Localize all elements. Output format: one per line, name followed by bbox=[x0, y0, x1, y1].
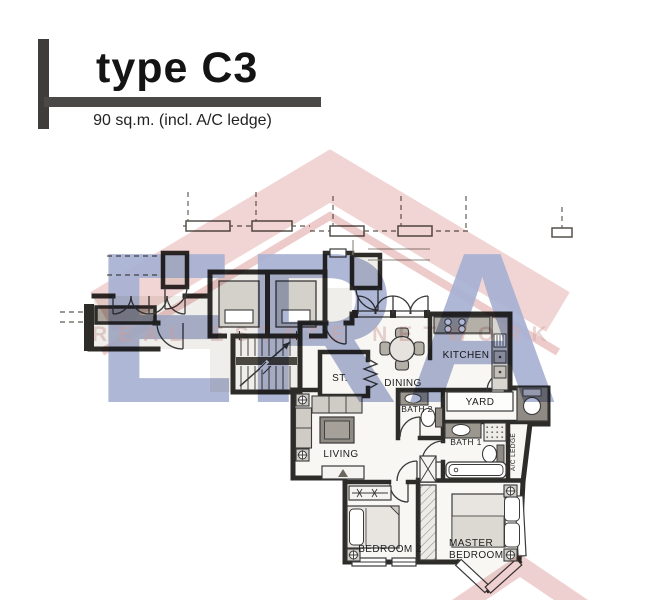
room-label-living: LIVING bbox=[323, 449, 358, 460]
room-label-bedroom2: BEDROOM 2 bbox=[358, 544, 422, 555]
room-label-master-2: BEDROOM bbox=[449, 550, 503, 561]
pillow bbox=[350, 509, 364, 545]
master-wardrobe bbox=[420, 485, 436, 560]
room-label-master-1: MASTER bbox=[449, 538, 493, 549]
era-tagline-text: REAL ESTATE NETWORK bbox=[92, 323, 558, 346]
side-table bbox=[296, 449, 309, 461]
pillow bbox=[505, 497, 520, 521]
floorplan-page: type C3 90 sq.m. (incl. A/C ledge) bbox=[0, 0, 661, 600]
side-table bbox=[504, 485, 517, 497]
floor-plan-svg: ST. DINING KITCHEN YARD BATH 2 BATH 1 A/… bbox=[0, 0, 661, 600]
pillow bbox=[505, 523, 520, 547]
